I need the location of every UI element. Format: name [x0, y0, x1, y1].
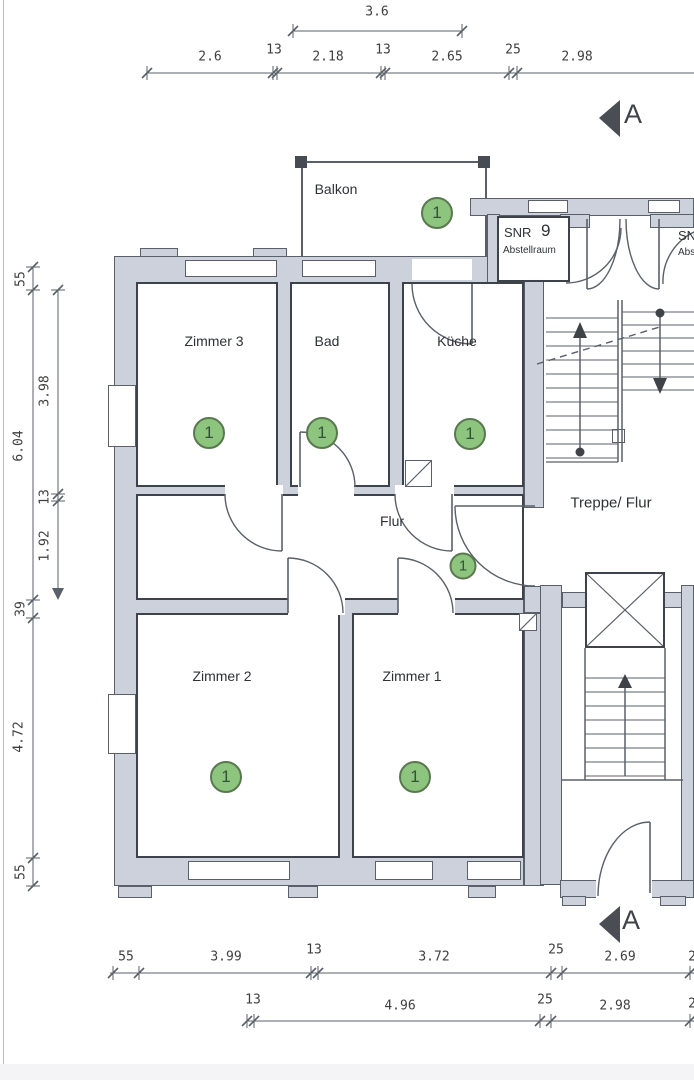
label-bad: Bad [315, 333, 340, 349]
dim-top-0: 2.6 [198, 50, 221, 65]
room-zimmer2 [136, 613, 340, 858]
door-opening-zimmer1 [398, 598, 455, 615]
door-opening-zimmer3 [225, 485, 283, 496]
balcony-post-left [295, 156, 307, 168]
dim-bottom1-3: 3.72 [418, 950, 449, 965]
label-kueche: Küche [437, 333, 477, 349]
dim-bottom2-0: 13 [245, 993, 261, 1008]
dim-bottom2-clipped: 2 [688, 997, 694, 1012]
room-bad [290, 282, 390, 487]
dim-left-inner-0: 3.98 [38, 375, 53, 406]
wall-pilaster-bottom-5 [660, 896, 686, 906]
label-treppe-flur: Treppe/ Flur [570, 495, 651, 512]
door-opening-stairwell [596, 878, 652, 900]
dim-bottom1-0: 55 [118, 950, 134, 965]
dim-left-outer-2: 39 [14, 601, 29, 617]
dim-left-outer-3: 4.72 [12, 721, 27, 752]
window-zimmer1-a [375, 861, 433, 880]
dim-left-outer-1: 6.04 [12, 430, 27, 461]
dim-bottom1-clipped: 2 [688, 950, 694, 965]
wall-stairwell-right [681, 585, 694, 885]
stair-newel-box [612, 429, 625, 443]
niche-stairhall-1 [528, 200, 568, 213]
label-zimmer1: Zimmer 1 [382, 668, 441, 684]
wall-stub-entrance-right [650, 214, 694, 228]
dim-bottom1-5: 2.69 [604, 950, 635, 965]
balcony-post-right [478, 156, 490, 168]
unit-marker-balkon: 1 [421, 197, 453, 229]
label-snr-number: 9 [541, 221, 550, 241]
dim-top-2: 2.18 [312, 50, 343, 65]
window-bad [302, 260, 376, 277]
elevator-shaft [585, 572, 665, 648]
wall-pilaster-bottom-1 [118, 886, 152, 898]
dim-left-inner-2: 1.92 [38, 530, 53, 561]
room-zimmer1 [352, 613, 524, 858]
unit-marker-zimmer1: 1 [399, 761, 431, 793]
room-flur [136, 494, 524, 600]
unit-marker-zimmer2: 1 [210, 761, 242, 793]
door-opening-zimmer2 [288, 598, 345, 615]
wall-pilaster-top-2 [253, 248, 287, 257]
dim-bottom2-3: 2.98 [599, 999, 630, 1014]
dim-bottom2-1: 4.96 [384, 999, 415, 1014]
dim-left-outer-4: 55 [14, 864, 29, 880]
label-balkon: Balkon [315, 181, 358, 197]
dim-top-1: 13 [266, 43, 282, 58]
window-left-upper [108, 385, 136, 447]
wall-pilaster-bottom-4 [562, 896, 586, 906]
dim-bottom1-2: 13 [306, 943, 322, 958]
label-zimmer2: Zimmer 2 [192, 668, 251, 684]
door-opening-bad [298, 485, 354, 496]
dim-top-3: 13 [375, 43, 391, 58]
label-snr: SNR [504, 225, 531, 240]
label-abstellraum-right-clipped: Abstellraum [678, 247, 694, 261]
window-left-lower [108, 694, 136, 754]
dim-left-inner-1: 13 [38, 489, 53, 505]
label-snr-right-clipped: SNR [678, 228, 694, 246]
dim-bottom2-2: 25 [537, 993, 553, 1008]
wall-right-upper [524, 256, 544, 508]
shaft-symbol-entrance [519, 613, 537, 631]
section-marker-a-bottom: A [622, 905, 640, 936]
window-zimmer2 [188, 861, 290, 880]
wall-jamb-left [562, 592, 586, 608]
window-zimmer1-b [467, 861, 521, 880]
dim-left-outer-0: 55 [14, 271, 29, 287]
room-kueche [402, 282, 524, 487]
dim-bottom1-4: 25 [548, 943, 564, 958]
scan-edge-line [3, 0, 4, 1080]
floorplan-page: Balkon Zimmer 3 Bad Küche Flur Treppe/ F… [0, 0, 694, 1080]
balcony-outline [301, 161, 487, 262]
unit-marker-flur: 1 [450, 553, 477, 580]
room-zimmer3 [136, 282, 278, 487]
label-zimmer3: Zimmer 3 [184, 333, 243, 349]
wall-pilaster-top-1 [140, 248, 178, 257]
wall-pilaster-bottom-3 [468, 886, 496, 898]
unit-marker-bad: 1 [306, 417, 338, 449]
label-flur: Flur [380, 513, 404, 529]
dim-top-6: 2.98 [561, 50, 592, 65]
dim-top-4: 2.65 [431, 50, 462, 65]
door-opening-balcony [412, 259, 472, 280]
wall-stairwell-left [540, 585, 562, 885]
unit-marker-kueche: 1 [454, 418, 486, 450]
dim-bottom1-1: 3.99 [210, 950, 241, 965]
window-zimmer3 [185, 260, 277, 277]
label-abstellraum: Abstellraum [503, 245, 556, 256]
shaft-symbol-kueche [405, 460, 432, 487]
niche-stairhall-2 [648, 200, 680, 213]
dim-top-5: 25 [505, 43, 521, 58]
section-marker-a-top: A [624, 99, 642, 130]
page-bottom-band [0, 1064, 694, 1080]
dim-top-detail: 3.6 [365, 5, 388, 20]
unit-marker-zimmer3: 1 [193, 417, 225, 449]
wall-pilaster-bottom-2 [288, 886, 318, 898]
